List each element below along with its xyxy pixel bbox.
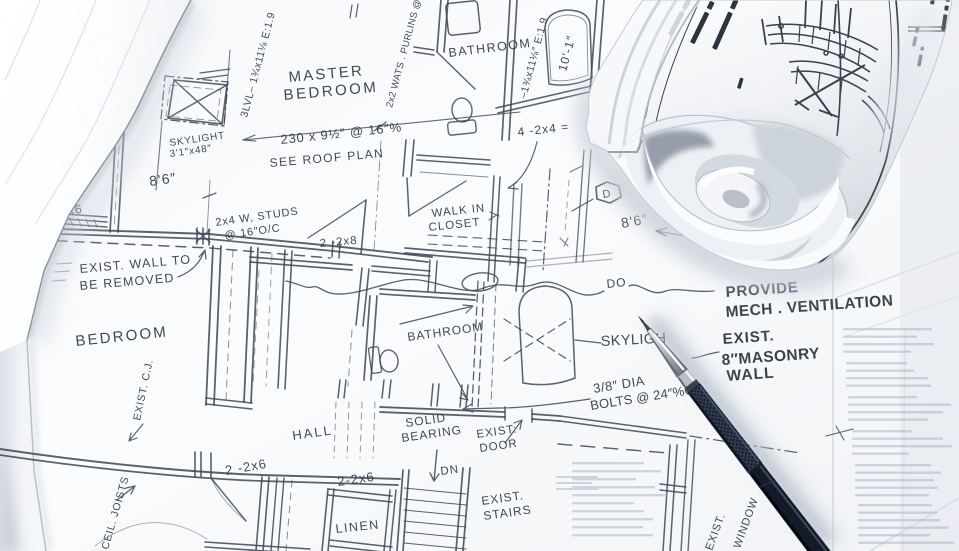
svg-text:DO: DO [606, 275, 627, 291]
svg-text:EXIST.: EXIST. [722, 327, 775, 348]
svg-text:DN: DN [440, 463, 460, 477]
svg-text:WALL: WALL [726, 365, 775, 385]
